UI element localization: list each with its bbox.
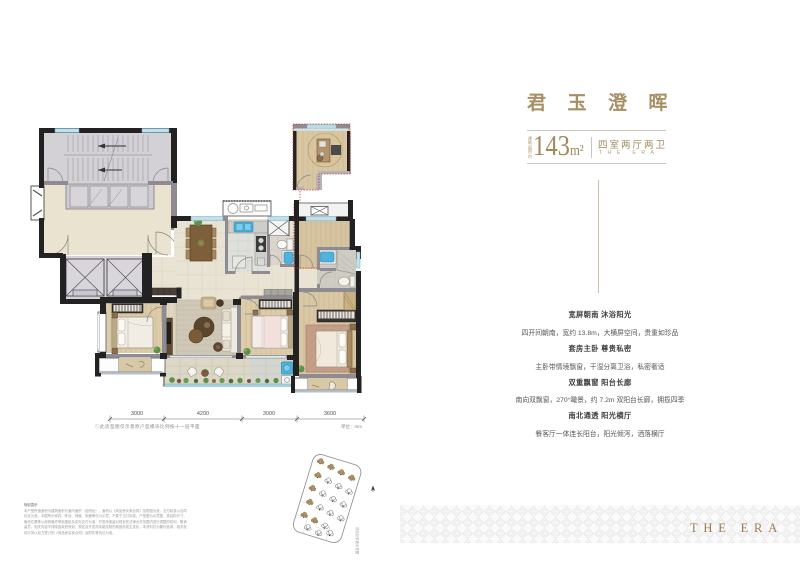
svg-text:4200: 4200 xyxy=(197,411,209,417)
svg-text:项目总平面示意图: 项目总平面示意图 xyxy=(355,527,360,555)
svg-text:3000: 3000 xyxy=(263,411,275,417)
svg-text:3000: 3000 xyxy=(131,411,143,417)
svg-text:3600: 3600 xyxy=(324,411,336,417)
